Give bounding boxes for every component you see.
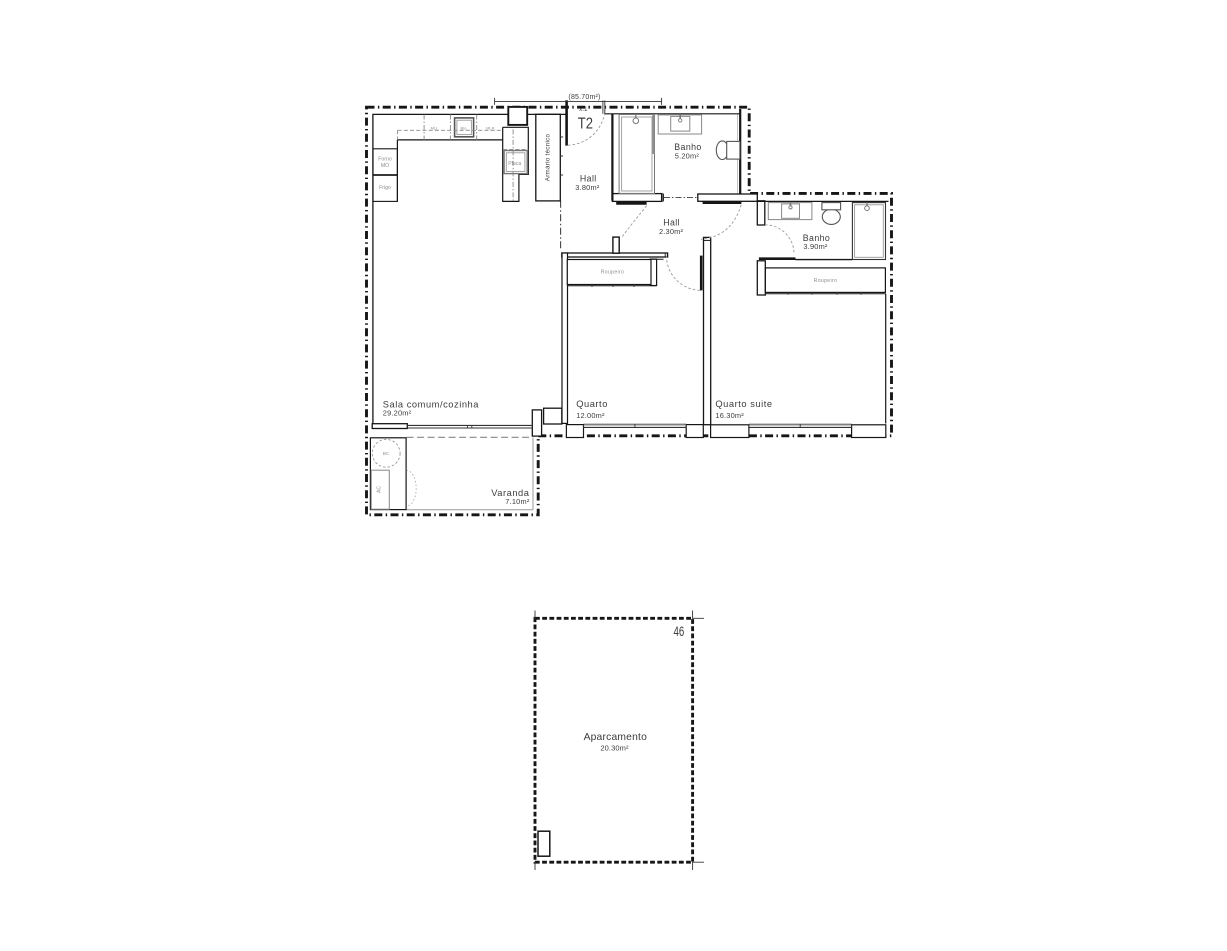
svg-text:x.1: x.1 (579, 106, 588, 113)
svg-text:20.30m²: 20.30m² (600, 744, 629, 753)
svg-text:Roupeiro: Roupeiro (814, 278, 837, 284)
svg-text:T2: T2 (578, 116, 593, 133)
svg-text:7.10m²: 7.10m² (505, 497, 530, 506)
svg-text:AC: AC (377, 486, 383, 493)
svg-text:3.80m²: 3.80m² (575, 183, 600, 192)
svg-text:MLL: MLL (431, 126, 440, 131)
svg-text:Frigo: Frigo (379, 185, 391, 191)
svg-text:Blo.: Blo. (461, 126, 468, 131)
svg-text:BC: BC (383, 451, 390, 456)
svg-text:Roupeiro: Roupeiro (601, 270, 624, 276)
svg-text:Quarto suite: Quarto suite (715, 399, 772, 409)
svg-text:Forno: Forno (378, 157, 392, 163)
svg-text:Aparcamento: Aparcamento (584, 732, 648, 743)
svg-text:12.00m²: 12.00m² (576, 411, 605, 420)
svg-text:5.20m²: 5.20m² (675, 151, 700, 160)
svg-text:Quarto: Quarto (576, 399, 608, 409)
svg-text:29.20m²: 29.20m² (383, 408, 412, 417)
svg-text:Armário técnico: Armário técnico (545, 134, 552, 182)
svg-text:46: 46 (674, 624, 685, 639)
svg-text:16.30m²: 16.30m² (715, 411, 744, 420)
svg-text:MO: MO (381, 163, 389, 169)
svg-text:2.30m²: 2.30m² (659, 227, 684, 236)
svg-text:(85.70m²): (85.70m²) (568, 94, 600, 101)
svg-text:MLR: MLR (486, 126, 495, 131)
svg-text:Placa: Placa (508, 161, 521, 167)
svg-text:3.90m²: 3.90m² (803, 242, 828, 251)
